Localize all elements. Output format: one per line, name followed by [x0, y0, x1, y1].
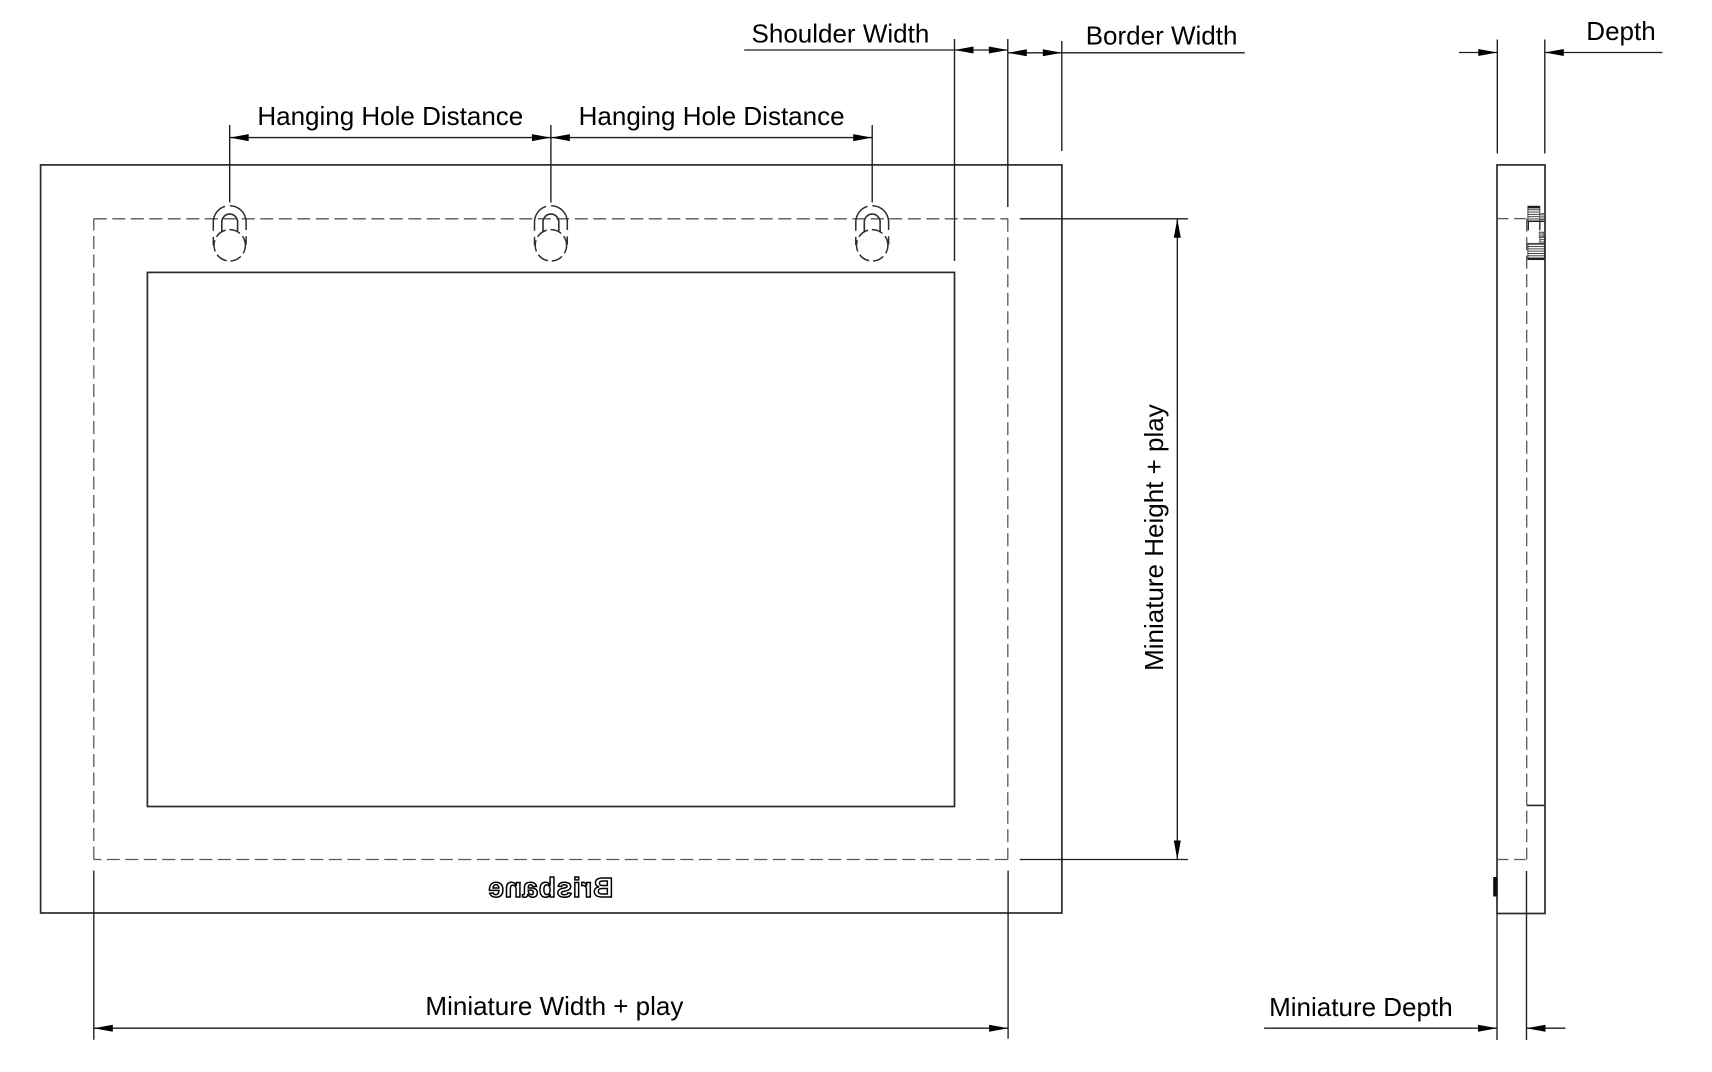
svg-text:Border Width: Border Width: [1086, 21, 1238, 51]
svg-text:Miniature Height + play: Miniature Height + play: [1139, 404, 1169, 671]
svg-text:Depth: Depth: [1586, 16, 1655, 46]
svg-text:Shoulder Width: Shoulder Width: [752, 18, 930, 48]
svg-text:Hanging Hole Distance: Hanging Hole Distance: [579, 101, 845, 131]
svg-text:Miniature Width + play: Miniature Width + play: [425, 991, 683, 1021]
svg-text:Miniature Depth: Miniature Depth: [1269, 992, 1453, 1022]
svg-text:Brisbane: Brisbane: [488, 872, 613, 903]
svg-text:Hanging Hole Distance: Hanging Hole Distance: [257, 101, 523, 131]
